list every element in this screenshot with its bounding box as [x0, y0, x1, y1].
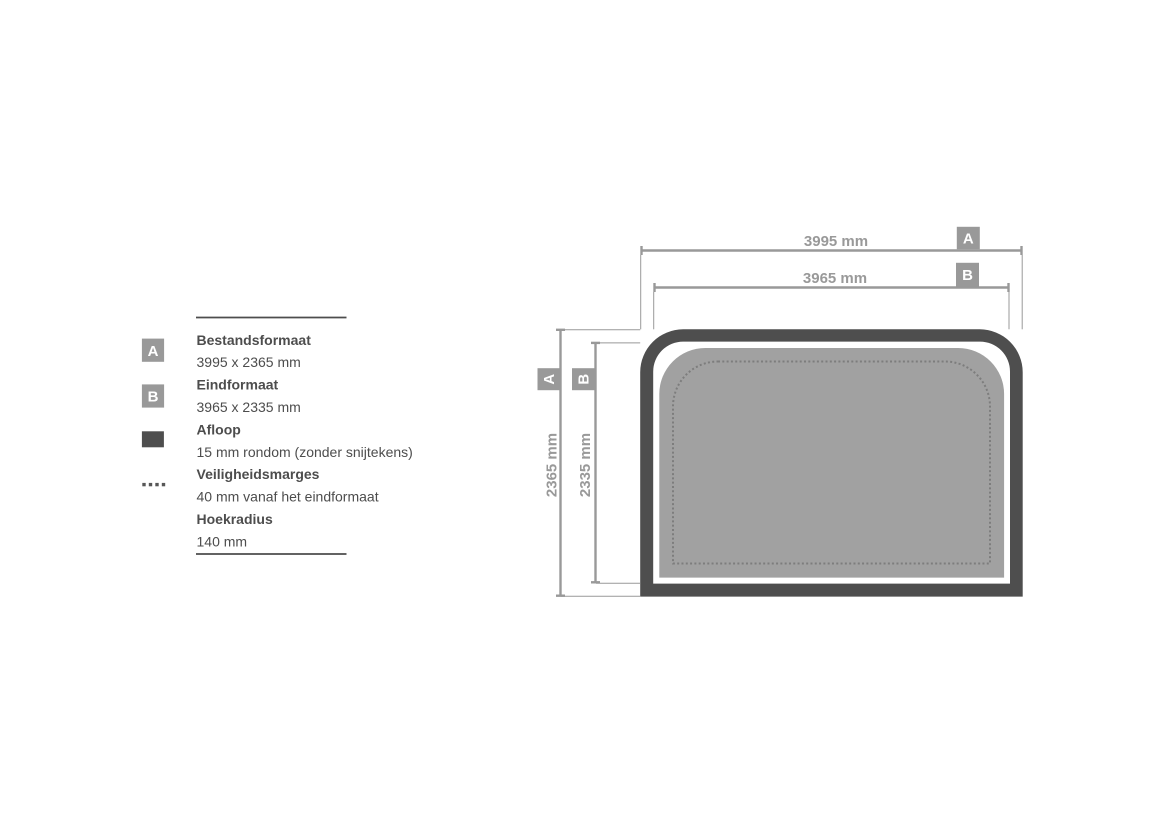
svg-text:Hoekradius: Hoekradius [197, 511, 273, 527]
svg-text:Eindformaat: Eindformaat [197, 377, 279, 393]
svg-text:A: A [541, 374, 558, 385]
svg-text:3995 mm: 3995 mm [804, 233, 868, 250]
svg-text:Veiligheidsmarges: Veiligheidsmarges [197, 466, 320, 482]
svg-text:40 mm vanaf het eindformaat: 40 mm vanaf het eindformaat [197, 489, 379, 505]
svg-text:15 mm rondom (zonder snijteken: 15 mm rondom (zonder snijtekens) [197, 444, 413, 460]
svg-text:Afloop: Afloop [197, 421, 241, 437]
svg-text:B: B [962, 267, 973, 284]
svg-text:A: A [963, 230, 974, 247]
svg-text:2365 mm: 2365 mm [544, 433, 561, 497]
svg-text:B: B [576, 374, 593, 385]
svg-text:3965 x 2335 mm: 3965 x 2335 mm [197, 399, 301, 415]
svg-text:2335 mm: 2335 mm [577, 433, 594, 497]
svg-text:3965 mm: 3965 mm [803, 270, 867, 287]
svg-text:3995 x 2365 mm: 3995 x 2365 mm [197, 354, 301, 370]
svg-text:140 mm: 140 mm [197, 533, 248, 549]
svg-text:B: B [148, 388, 159, 405]
svg-text:A: A [148, 343, 159, 360]
svg-text:Bestandsformaat: Bestandsformaat [197, 332, 312, 348]
